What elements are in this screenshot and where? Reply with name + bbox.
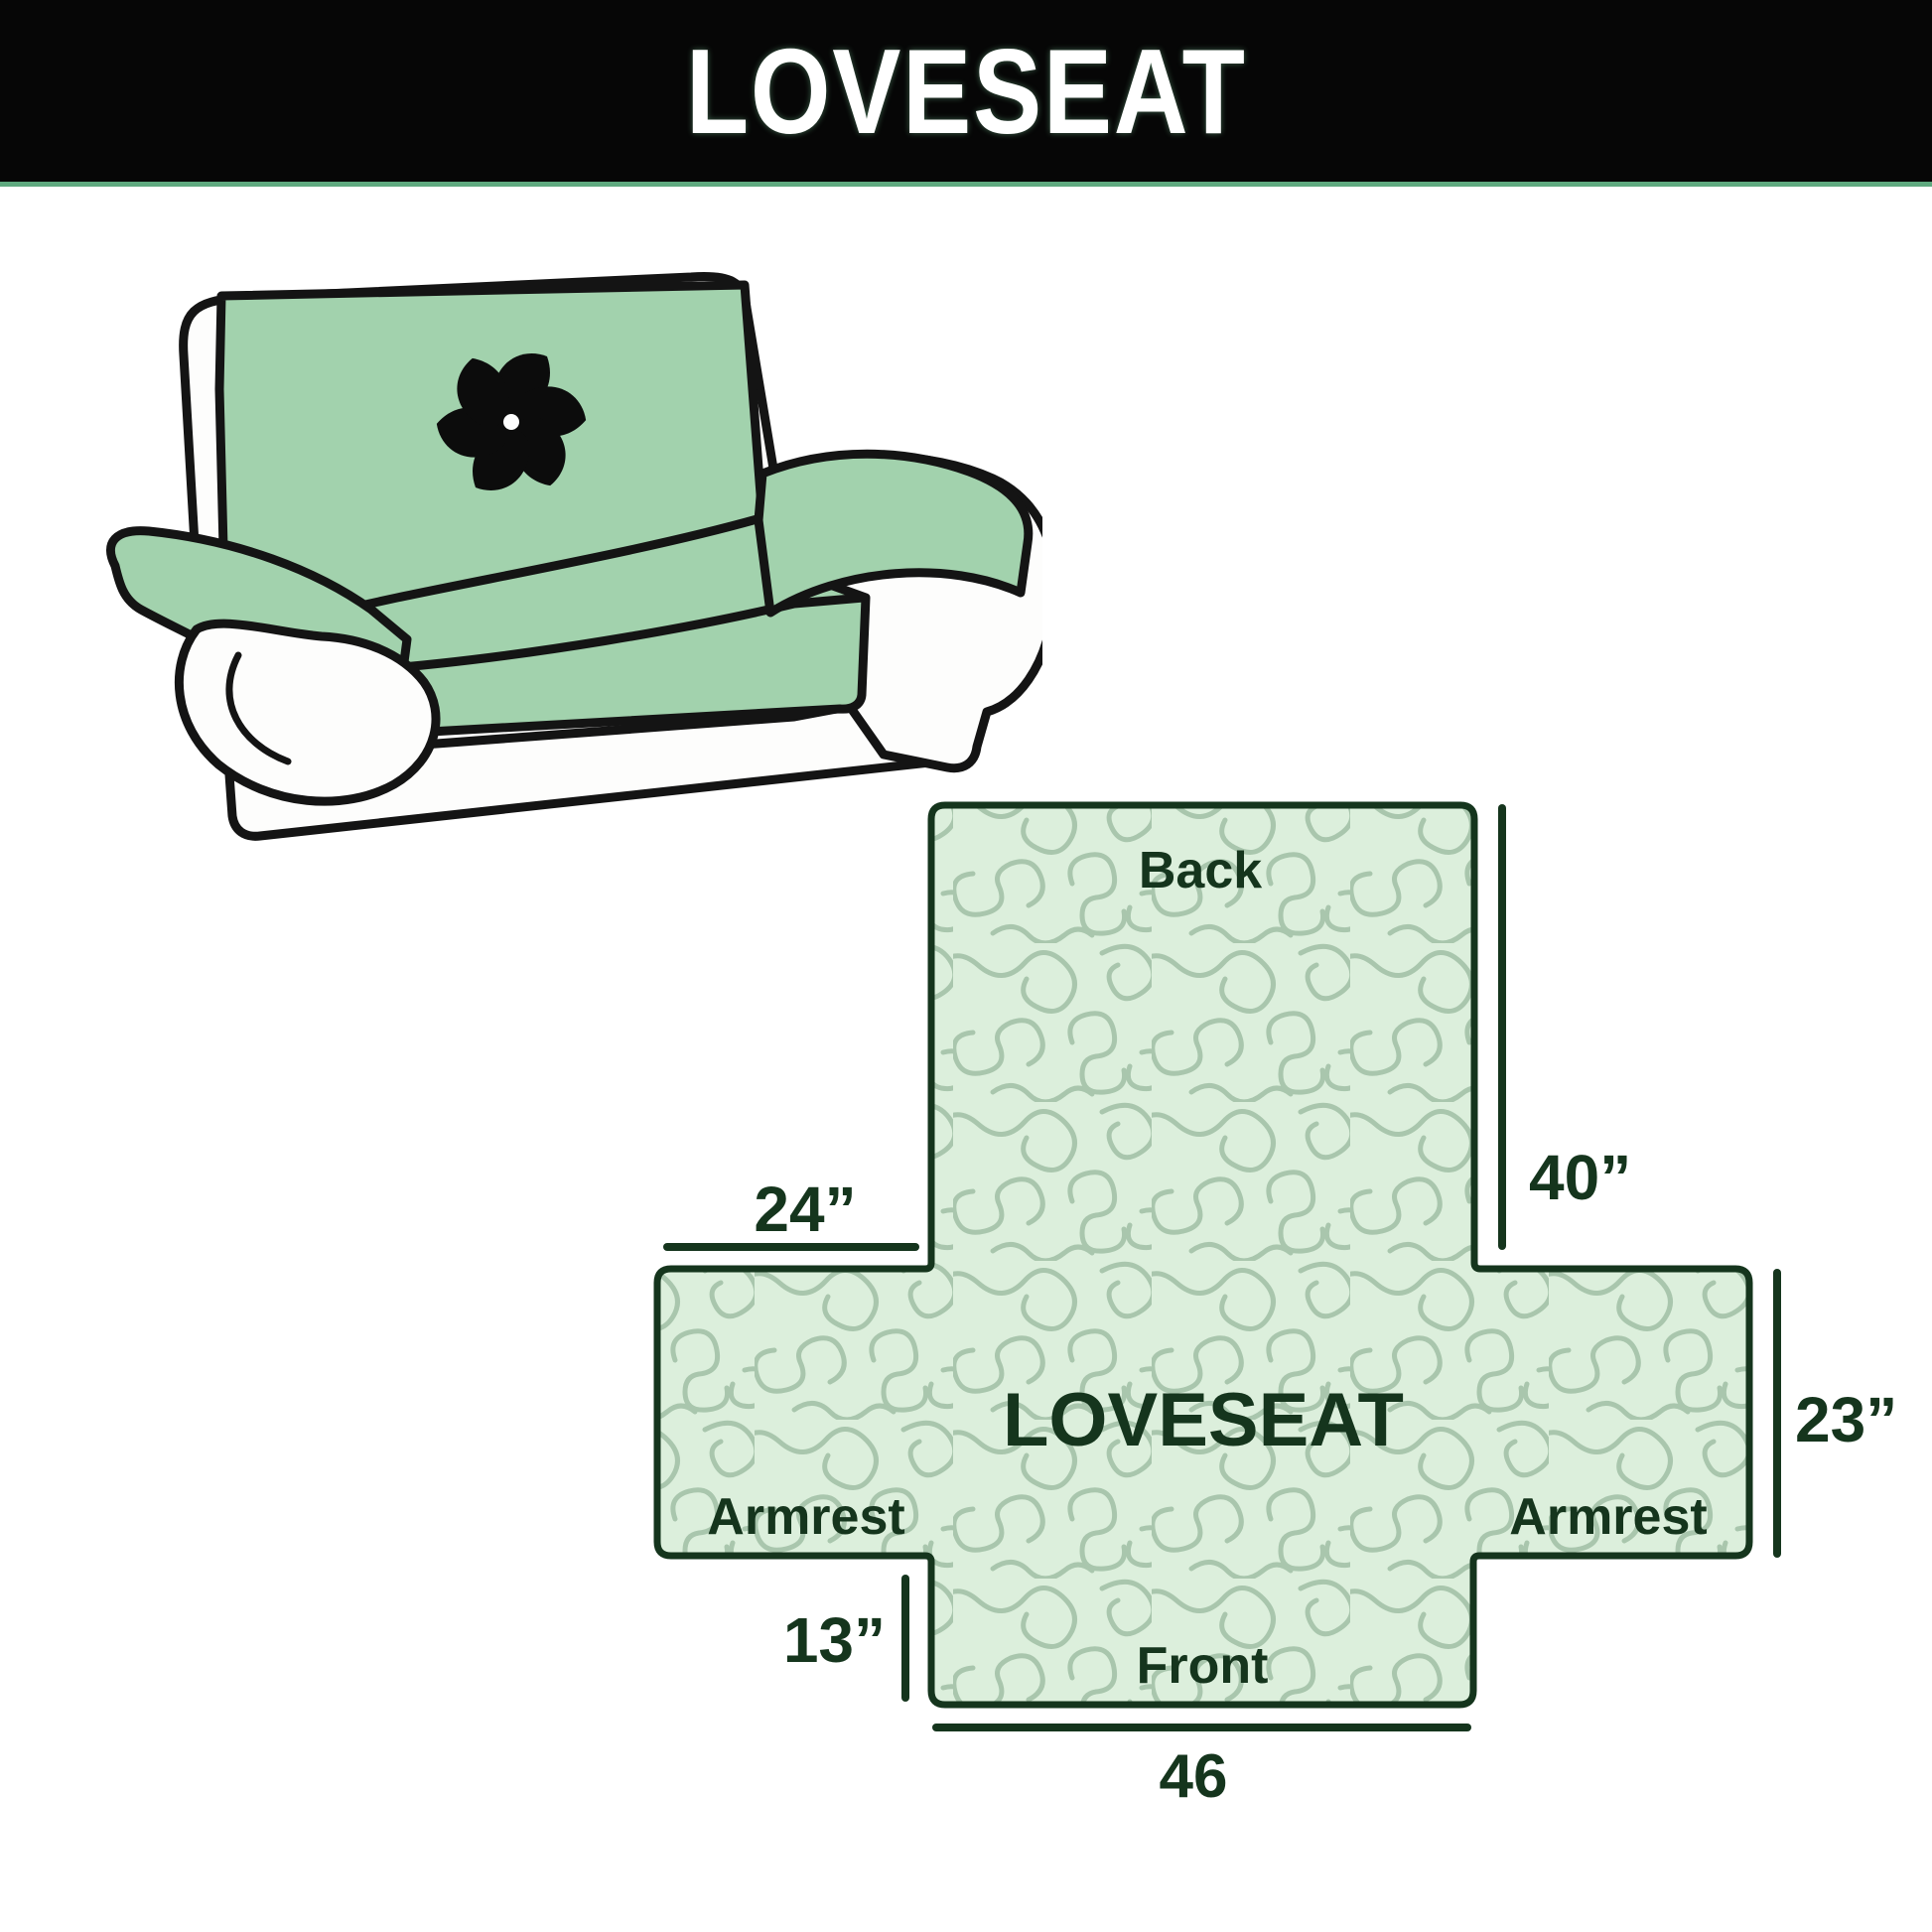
loveseat-illustration-svg	[99, 270, 1042, 846]
cover-dimension-diagram-svg: Back LOVESEAT Armrest Armrest Front 40” …	[556, 784, 1906, 1837]
dimension-front-height: 13”	[783, 1604, 886, 1676]
dimension-back-height: 40”	[1529, 1142, 1631, 1213]
page: LOVESEAT	[0, 0, 1932, 1932]
center-label: LOVESEAT	[1003, 1378, 1404, 1462]
loveseat-illustration	[99, 270, 1042, 846]
page-title: LOVESEAT	[686, 31, 1247, 152]
cover-dimension-diagram: Back LOVESEAT Armrest Armrest Front 40” …	[556, 784, 1906, 1837]
back-panel-label: Back	[1139, 842, 1262, 899]
header-bar: LOVESEAT	[0, 0, 1932, 187]
cover-shape-texture	[657, 805, 1749, 1705]
armrest-right-label: Armrest	[1509, 1488, 1707, 1546]
dimension-bottom-width: 46	[1160, 1742, 1228, 1811]
armrest-left-label: Armrest	[707, 1488, 904, 1546]
dimension-side-height: 23”	[1795, 1384, 1897, 1455]
dimension-top-width: 24”	[754, 1173, 856, 1245]
front-panel-label: Front	[1137, 1637, 1269, 1695]
